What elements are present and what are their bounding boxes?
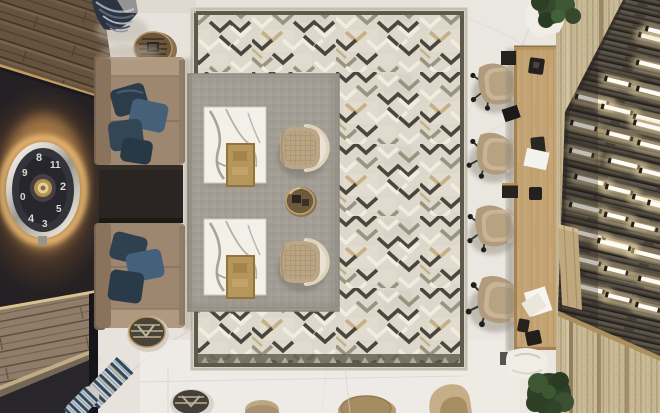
svg-text:3: 3 — [42, 219, 48, 230]
svg-text:2: 2 — [60, 181, 66, 193]
svg-text:0: 0 — [20, 192, 26, 203]
svg-text:5: 5 — [56, 204, 62, 215]
svg-text:9: 9 — [22, 168, 28, 179]
svg-text:4: 4 — [28, 213, 35, 225]
svg-text:8: 8 — [36, 152, 42, 164]
svg-text:11: 11 — [50, 160, 61, 171]
